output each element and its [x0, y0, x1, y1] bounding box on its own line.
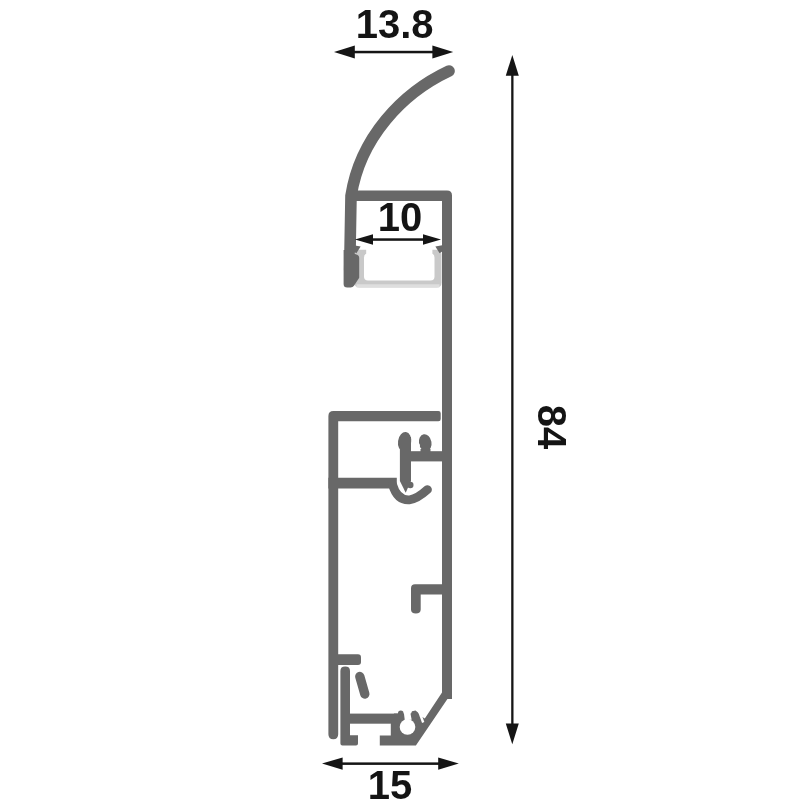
svg-text:10: 10 [378, 195, 423, 239]
svg-text:84: 84 [530, 405, 574, 450]
svg-text:15: 15 [368, 763, 413, 800]
svg-text:13.8: 13.8 [356, 2, 434, 46]
